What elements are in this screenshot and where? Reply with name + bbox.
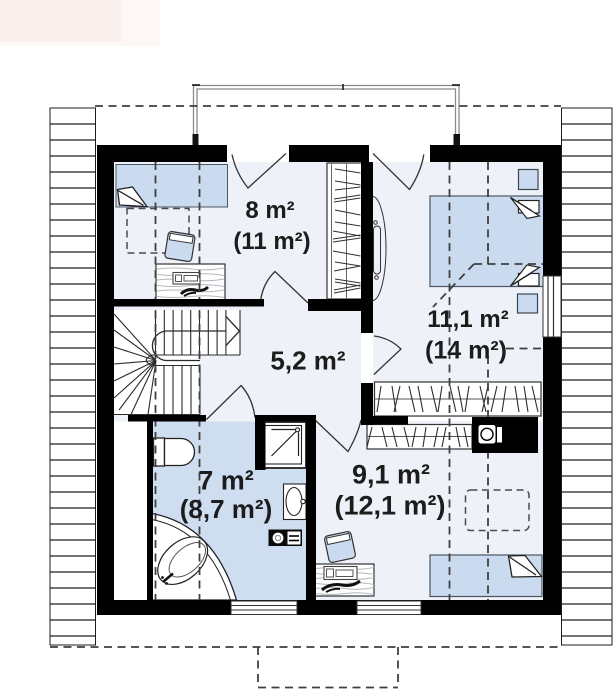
svg-text:5,2 m²: 5,2 m²: [270, 346, 345, 376]
svg-text:(8,7 m²): (8,7 m²): [180, 494, 272, 524]
svg-text:(14 m²): (14 m²): [425, 337, 507, 365]
svg-text:7 m²: 7 m²: [198, 466, 254, 496]
svg-text:(12,1 m²): (12,1 m²): [334, 491, 445, 521]
svg-text:8 m²: 8 m²: [245, 197, 294, 224]
svg-text:9,1 m²: 9,1 m²: [352, 460, 430, 490]
svg-text:(11 m²): (11 m²): [233, 228, 310, 255]
svg-text:11,1 m²: 11,1 m²: [427, 306, 508, 333]
